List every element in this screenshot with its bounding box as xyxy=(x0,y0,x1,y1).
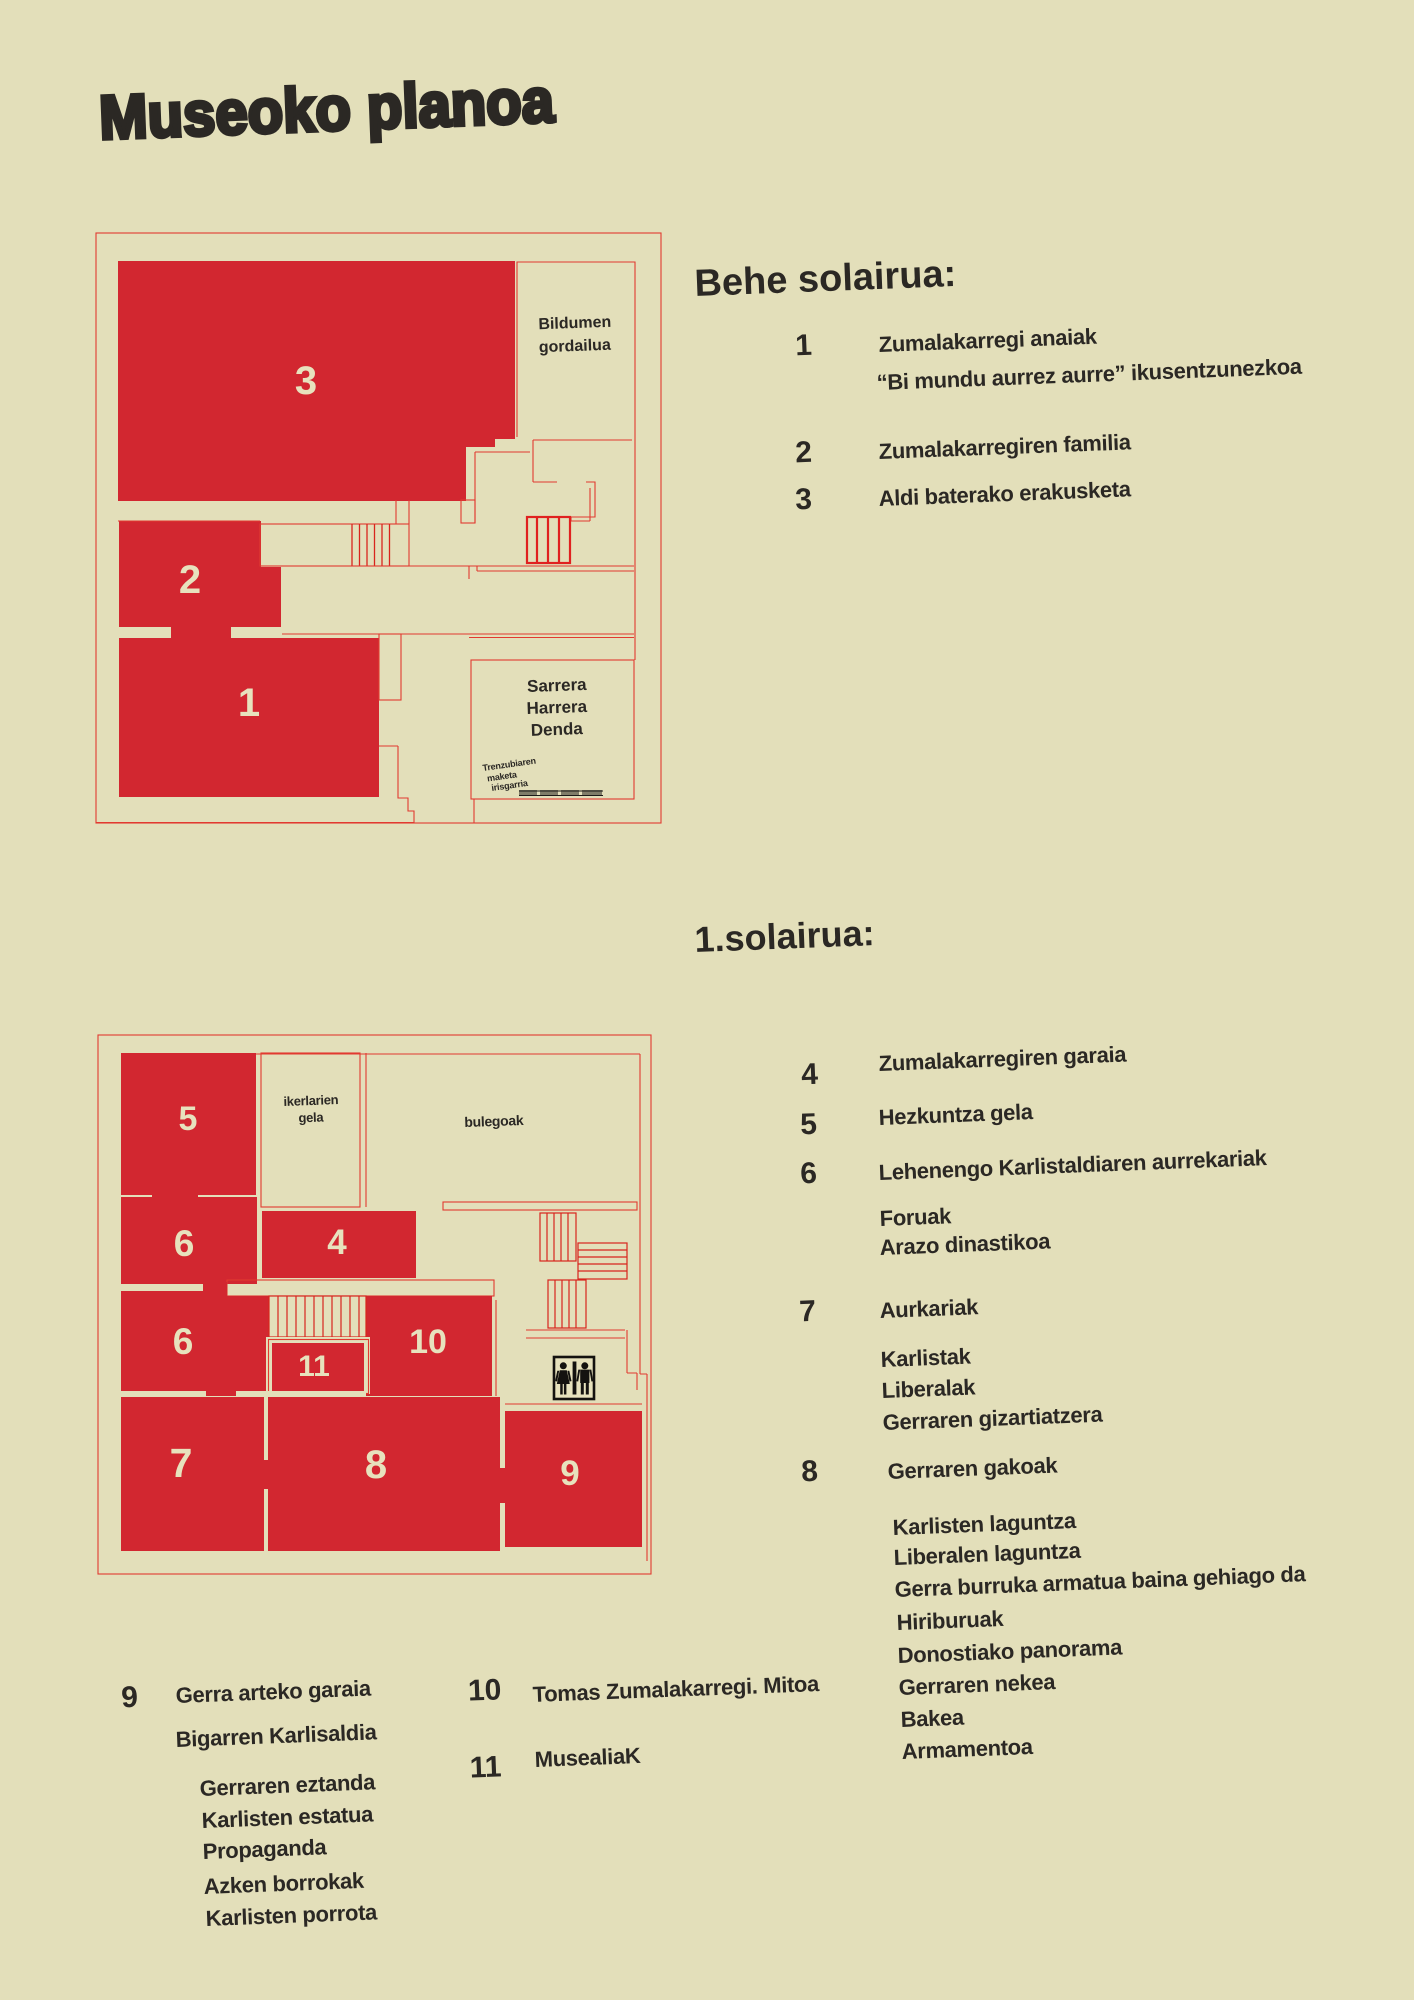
svg-text:5: 5 xyxy=(800,1108,818,1142)
svg-text:bulegoak: bulegoak xyxy=(464,1112,524,1130)
svg-text:6: 6 xyxy=(173,1321,194,1362)
svg-text:4: 4 xyxy=(801,1058,819,1092)
svg-text:10: 10 xyxy=(467,1673,502,1707)
svg-text:9: 9 xyxy=(560,1454,579,1493)
svg-text:7: 7 xyxy=(799,1295,817,1329)
svg-text:7: 7 xyxy=(170,1440,193,1486)
svg-text:Hiriburuak: Hiriburuak xyxy=(896,1606,1005,1635)
svg-text:3: 3 xyxy=(295,359,317,403)
svg-text:6: 6 xyxy=(800,1157,818,1191)
svg-text:Harrera: Harrera xyxy=(526,697,588,718)
svg-text:Denda: Denda xyxy=(531,719,584,740)
svg-text:1.solairua:: 1.solairua: xyxy=(694,912,876,960)
svg-text:Aurkariak: Aurkariak xyxy=(879,1294,979,1323)
svg-text:10: 10 xyxy=(409,1323,447,1361)
svg-text:2: 2 xyxy=(795,436,813,470)
svg-text:11: 11 xyxy=(469,1750,502,1784)
svg-text:ikerlarien: ikerlarien xyxy=(283,1092,339,1109)
svg-text:Foruak: Foruak xyxy=(879,1203,952,1231)
svg-text:6: 6 xyxy=(174,1223,195,1264)
svg-text:11: 11 xyxy=(298,1350,330,1383)
svg-text:Liberalak: Liberalak xyxy=(881,1374,976,1403)
svg-text:9: 9 xyxy=(121,1681,139,1715)
svg-text:Propaganda: Propaganda xyxy=(202,1834,328,1864)
svg-text:Bakea: Bakea xyxy=(900,1705,965,1732)
svg-text:1: 1 xyxy=(238,681,260,725)
svg-text:5: 5 xyxy=(179,1100,198,1138)
svg-text:8: 8 xyxy=(801,1455,819,1489)
svg-text:2: 2 xyxy=(179,558,201,602)
svg-text:gela: gela xyxy=(298,1110,324,1126)
svg-text:8: 8 xyxy=(365,1443,387,1487)
svg-text:3: 3 xyxy=(795,483,813,517)
svg-text:1: 1 xyxy=(795,329,813,363)
svg-text:Sarrera: Sarrera xyxy=(527,675,588,696)
svg-text:Bildumen: Bildumen xyxy=(538,314,611,334)
svg-text:Armamentoa: Armamentoa xyxy=(901,1734,1034,1764)
svg-text:Karlistak: Karlistak xyxy=(880,1344,972,1372)
svg-text:MusealiaK: MusealiaK xyxy=(534,1743,641,1772)
svg-text:4: 4 xyxy=(327,1223,347,1262)
svg-text:gordailua: gordailua xyxy=(539,337,612,357)
